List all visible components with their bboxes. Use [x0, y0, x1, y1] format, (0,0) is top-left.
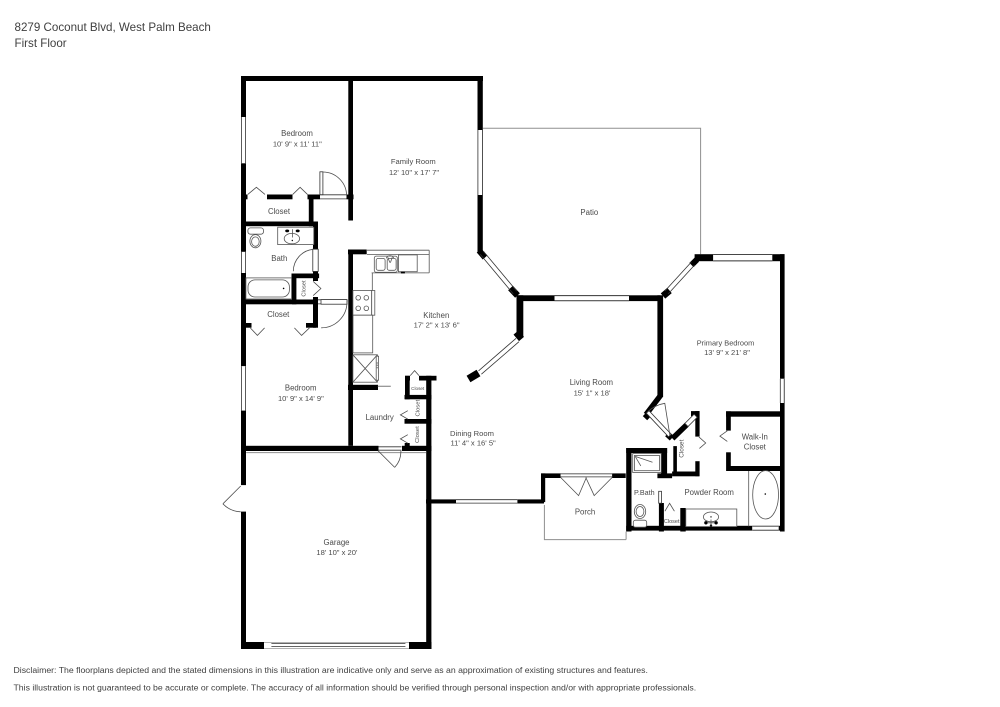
svg-text:Porch: Porch	[575, 508, 595, 517]
svg-text:Closet: Closet	[415, 426, 421, 443]
svg-text:Kitchen: Kitchen	[423, 311, 449, 320]
svg-text:17' 2" x 13' 6": 17' 2" x 13' 6"	[414, 321, 460, 330]
svg-text:Family Room: Family Room	[391, 157, 436, 166]
svg-text:This illustration is not guara: This illustration is not guaranteed to b…	[14, 683, 697, 693]
svg-text:Powder Room: Powder Room	[684, 488, 733, 497]
svg-text:Closet: Closet	[268, 207, 291, 216]
svg-text:Laundry: Laundry	[366, 413, 394, 422]
svg-text:Disclaimer: The floorplans dep: Disclaimer: The floorplans depicted and …	[14, 665, 648, 675]
svg-text:15' 1" x 18': 15' 1" x 18'	[574, 388, 611, 397]
svg-text:Bath: Bath	[271, 254, 287, 263]
svg-text:10' 9" x 11' 11": 10' 9" x 11' 11"	[273, 140, 322, 149]
svg-text:Closet: Closet	[267, 310, 290, 319]
svg-text:Closet: Closet	[411, 386, 425, 391]
svg-text:First Floor: First Floor	[15, 37, 67, 50]
svg-text:Garage: Garage	[323, 538, 349, 547]
svg-text:Closet: Closet	[744, 443, 767, 452]
svg-text:10' 9" x 14' 9": 10' 9" x 14' 9"	[278, 394, 324, 403]
svg-text:Bedroom: Bedroom	[281, 129, 313, 138]
svg-text:Closet: Closet	[679, 439, 686, 457]
svg-text:Bedroom: Bedroom	[285, 383, 317, 392]
svg-text:Closet: Closet	[302, 280, 308, 297]
svg-text:18' 10" x 20': 18' 10" x 20'	[316, 548, 358, 557]
svg-text:13' 9" x 21' 8": 13' 9" x 21' 8"	[704, 348, 750, 357]
svg-text:Dining Room: Dining Room	[450, 429, 494, 438]
svg-text:12' 10" x 17' 7": 12' 10" x 17' 7"	[389, 168, 439, 177]
svg-text:Closet: Closet	[664, 519, 680, 525]
svg-text:Living Room: Living Room	[570, 378, 613, 387]
svg-text:P.Bath: P.Bath	[634, 488, 655, 497]
svg-text:Closet: Closet	[415, 399, 421, 416]
svg-text:11' 4" x 16' 5": 11' 4" x 16' 5"	[450, 439, 496, 448]
svg-text:8279 Coconut Blvd, West Palm B: 8279 Coconut Blvd, West Palm Beach	[15, 21, 211, 34]
svg-text:Patio: Patio	[580, 208, 598, 217]
svg-text:Primary Bedroom: Primary Bedroom	[697, 338, 755, 347]
svg-text:Walk-In: Walk-In	[742, 432, 768, 441]
